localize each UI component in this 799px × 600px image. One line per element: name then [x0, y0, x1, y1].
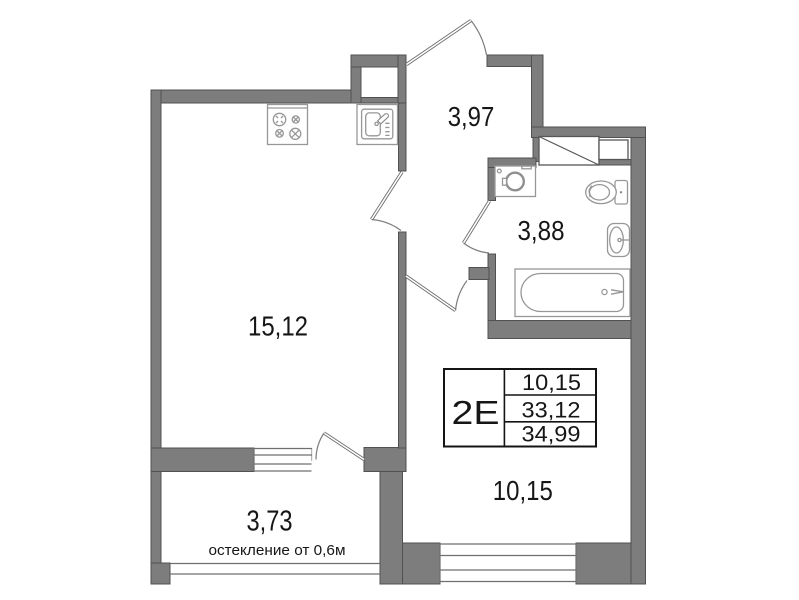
svg-text:33,12: 33,12 — [522, 398, 581, 423]
svg-text:остекление от 0,6м: остекление от 0,6м — [209, 542, 346, 559]
svg-text:3,73: 3,73 — [247, 506, 293, 538]
svg-text:34,99: 34,99 — [522, 422, 581, 447]
svg-text:2Е: 2Е — [452, 394, 500, 431]
svg-text:15,12: 15,12 — [248, 311, 308, 342]
svg-text:3,88: 3,88 — [518, 215, 565, 246]
svg-text:10,15: 10,15 — [522, 370, 581, 395]
svg-text:10,15: 10,15 — [493, 475, 553, 506]
svg-text:3,97: 3,97 — [448, 101, 495, 132]
